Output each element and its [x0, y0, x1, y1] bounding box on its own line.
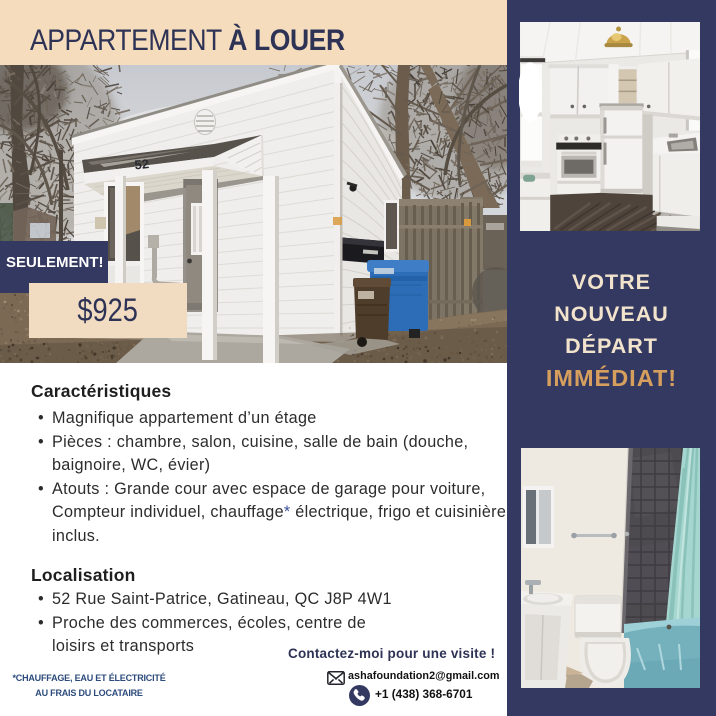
svg-text:52: 52	[134, 156, 150, 172]
